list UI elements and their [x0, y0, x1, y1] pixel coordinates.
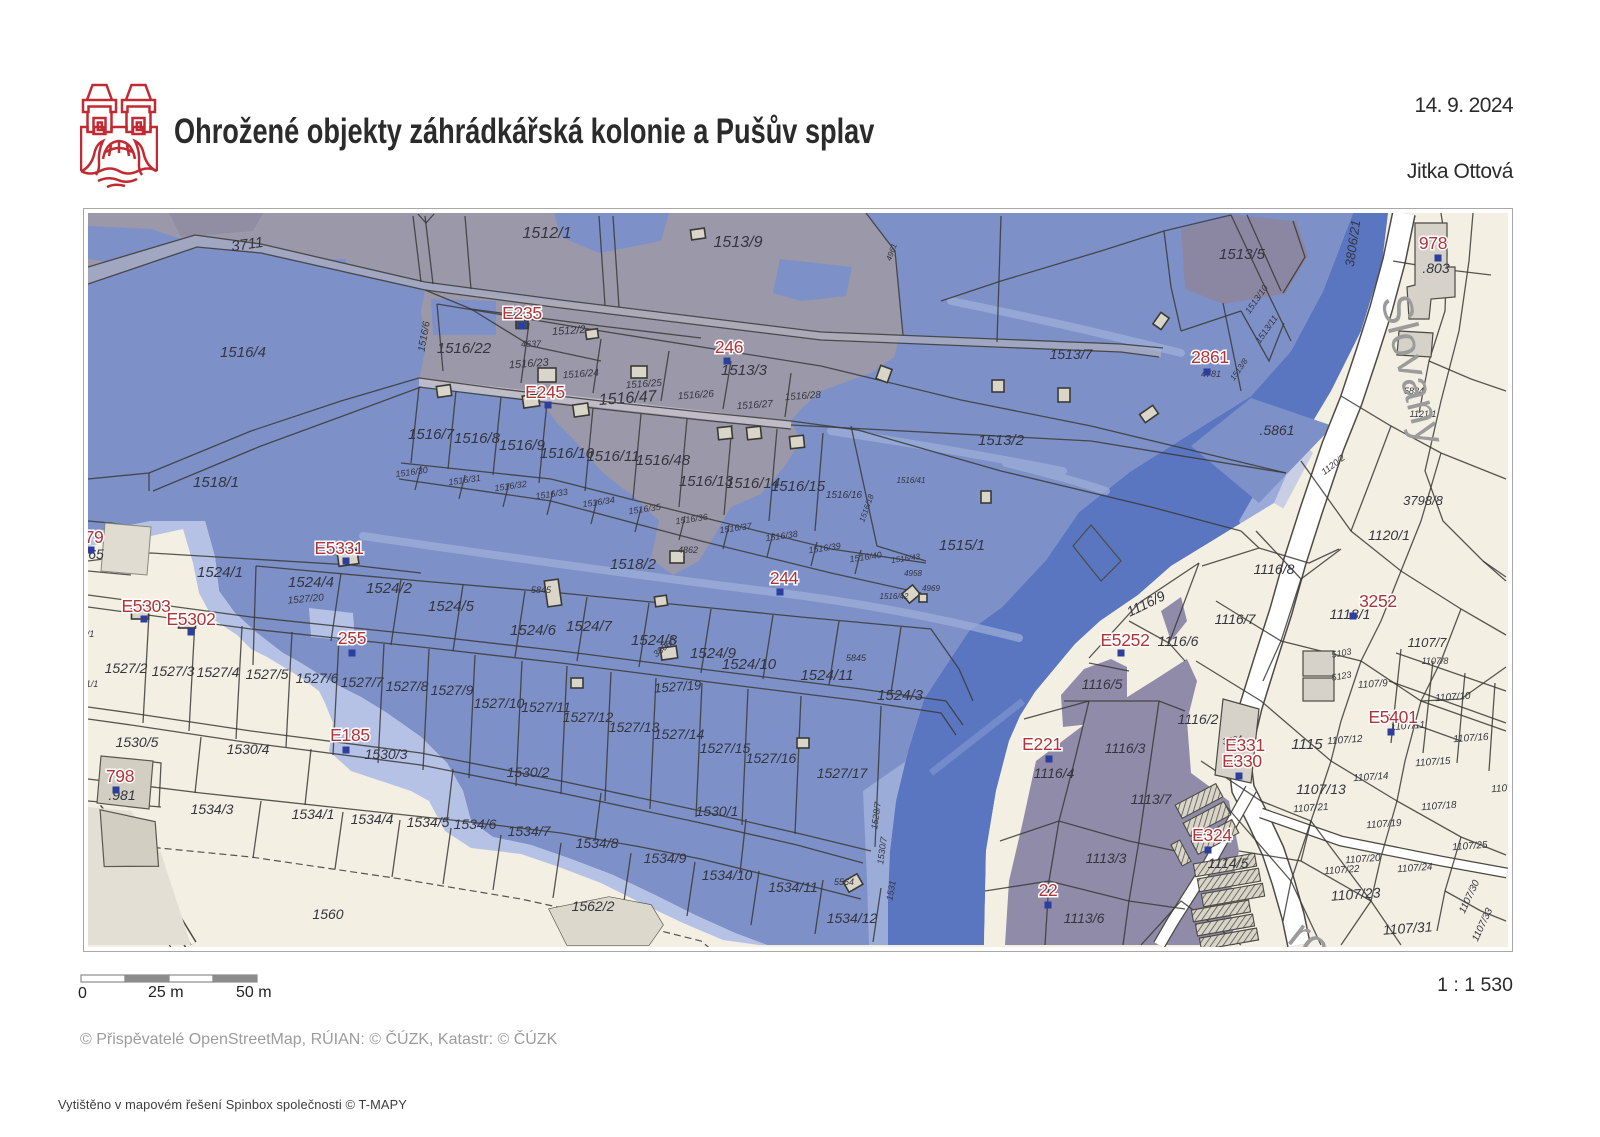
- svg-text:1116/4: 1116/4: [1034, 765, 1075, 781]
- svg-text:1116/8: 1116/8: [1254, 561, 1295, 577]
- svg-text:1107/17: 1107/17: [1491, 782, 1508, 795]
- svg-text:1527/17: 1527/17: [817, 765, 869, 781]
- svg-text:79: 79: [88, 527, 103, 547]
- svg-text:1527/14: 1527/14: [654, 726, 705, 742]
- svg-text:1516/22: 1516/22: [437, 340, 492, 357]
- svg-text:1113/6: 1113/6: [1064, 910, 1105, 926]
- svg-text:1527/8: 1527/8: [386, 678, 429, 694]
- svg-text:1107/13: 1107/13: [1296, 781, 1346, 797]
- svg-text:1516/8: 1516/8: [454, 430, 501, 447]
- svg-text:1116/7: 1116/7: [1215, 611, 1257, 627]
- svg-text:1530/3: 1530/3: [365, 746, 408, 762]
- svg-text:1527/9: 1527/9: [431, 682, 474, 698]
- svg-text:1534/5: 1534/5: [407, 814, 450, 830]
- svg-text:1534/11: 1534/11: [768, 879, 818, 895]
- svg-text:1527/5: 1527/5: [246, 666, 289, 682]
- svg-text:E5252: E5252: [1100, 630, 1149, 650]
- svg-text:1120/1: 1120/1: [1368, 527, 1410, 543]
- svg-text:255: 255: [338, 628, 366, 648]
- svg-text:1530/5: 1530/5: [116, 734, 159, 750]
- svg-text:1534/1: 1534/1: [292, 806, 335, 822]
- svg-text:1107/8: 1107/8: [1422, 656, 1449, 666]
- svg-text:1513/7: 1513/7: [1050, 346, 1094, 362]
- svg-text:5564: 5564: [834, 877, 854, 887]
- svg-text:1115: 1115: [1291, 736, 1323, 753]
- svg-text:1530/1: 1530/1: [696, 803, 739, 819]
- svg-text:E221: E221: [1022, 734, 1062, 754]
- svg-text:E5303: E5303: [121, 596, 170, 616]
- svg-text:1524/5: 1524/5: [428, 598, 475, 615]
- svg-text:978: 978: [1419, 233, 1447, 253]
- svg-text:.981: .981: [108, 787, 135, 803]
- svg-text:244: 244: [770, 568, 799, 588]
- svg-text:4969: 4969: [922, 584, 940, 593]
- svg-text:1516/4: 1516/4: [220, 344, 266, 361]
- svg-text:E235: E235: [502, 303, 542, 323]
- svg-text:4958: 4958: [904, 569, 922, 578]
- svg-text:1534/3: 1534/3: [191, 801, 234, 817]
- svg-text:1515/1: 1515/1: [939, 537, 985, 554]
- svg-text:4637: 4637: [521, 339, 542, 349]
- svg-text:E5302: E5302: [166, 609, 215, 629]
- svg-text:1107/9: 1107/9: [1358, 678, 1389, 691]
- svg-text:2861: 2861: [1191, 347, 1229, 367]
- svg-text:246: 246: [715, 337, 743, 357]
- svg-text:1527/3: 1527/3: [152, 663, 195, 679]
- svg-text:1527/16: 1527/16: [746, 750, 797, 766]
- svg-text:1534/10: 1534/10: [702, 867, 753, 883]
- svg-text:1516/42: 1516/42: [880, 592, 909, 601]
- svg-text:1116/2: 1116/2: [1178, 711, 1219, 727]
- svg-text:1527/15: 1527/15: [700, 740, 751, 756]
- svg-text:3252: 3252: [1359, 591, 1397, 611]
- svg-text:1114/5: 1114/5: [1208, 855, 1249, 871]
- svg-text:1516/41: 1516/41: [897, 476, 926, 485]
- svg-text:1113/7: 1113/7: [1131, 791, 1173, 807]
- svg-text:E330: E330: [1222, 751, 1262, 771]
- svg-text:798: 798: [106, 766, 134, 786]
- svg-text:1562/2: 1562/2: [572, 898, 615, 914]
- svg-text:1524/6: 1524/6: [510, 622, 557, 639]
- svg-text:1534/6: 1534/6: [454, 816, 497, 832]
- svg-text:1560: 1560: [312, 906, 343, 922]
- svg-text:E324: E324: [1192, 825, 1232, 845]
- svg-text:E185: E185: [330, 725, 370, 745]
- svg-text:1534/8: 1534/8: [576, 835, 619, 851]
- svg-text:1524/7: 1524/7: [566, 618, 613, 635]
- svg-text:1527/4: 1527/4: [197, 664, 240, 680]
- svg-text:1534/9: 1534/9: [644, 850, 687, 866]
- svg-text:1534/12: 1534/12: [827, 910, 878, 926]
- svg-text:.5861: .5861: [1259, 422, 1294, 438]
- svg-text:1527/2: 1527/2: [105, 660, 148, 676]
- svg-text:1524/1: 1524/1: [197, 564, 243, 581]
- svg-text:1107/7: 1107/7: [1408, 635, 1448, 650]
- svg-text:1530/2: 1530/2: [507, 764, 550, 780]
- svg-text:1/1: 1/1: [88, 679, 98, 689]
- svg-text:1527/7: 1527/7: [341, 674, 385, 690]
- svg-text:1518/2: 1518/2: [610, 556, 657, 573]
- svg-text:1527/12: 1527/12: [563, 709, 614, 725]
- svg-text:E5401: E5401: [1368, 707, 1417, 727]
- svg-text:1116/6: 1116/6: [1158, 633, 1199, 649]
- svg-text:1534/7: 1534/7: [508, 823, 552, 839]
- svg-text:1524/2: 1524/2: [366, 580, 413, 597]
- svg-text:1116/5: 1116/5: [1082, 676, 1123, 692]
- svg-text:E5331: E5331: [314, 538, 363, 558]
- svg-text:1534/4: 1534/4: [351, 811, 394, 827]
- svg-text:1516/15: 1516/15: [771, 478, 826, 495]
- svg-text:1527/10: 1527/10: [474, 695, 525, 711]
- svg-text:1512/1: 1512/1: [523, 225, 572, 242]
- svg-text:1530/4: 1530/4: [227, 741, 270, 757]
- svg-text:1518/1: 1518/1: [193, 474, 239, 491]
- svg-text:1527/6: 1527/6: [296, 670, 339, 686]
- svg-text:3798/8: 3798/8: [1403, 493, 1444, 508]
- svg-text:1516/48: 1516/48: [636, 452, 691, 469]
- svg-text:1513/9: 1513/9: [714, 234, 763, 251]
- svg-text:1516/16: 1516/16: [826, 490, 863, 501]
- svg-text:E245: E245: [525, 382, 565, 402]
- svg-text:1113/3: 1113/3: [1086, 850, 1127, 866]
- svg-text:1513/2: 1513/2: [978, 432, 1025, 449]
- svg-text:.803: .803: [1422, 260, 1449, 276]
- svg-text:4862: 4862: [678, 545, 698, 555]
- svg-text:1527/13: 1527/13: [609, 719, 660, 735]
- svg-text:5845: 5845: [531, 585, 552, 595]
- svg-text:1513/5: 1513/5: [1219, 246, 1266, 263]
- svg-text:7/1: 7/1: [88, 629, 94, 639]
- svg-text:1524/3: 1524/3: [877, 687, 924, 704]
- svg-text:1516/11: 1516/11: [586, 448, 639, 465]
- svg-text:1524/4: 1524/4: [288, 574, 334, 591]
- svg-text:1516/9: 1516/9: [499, 437, 546, 454]
- svg-text:1524/10: 1524/10: [722, 656, 777, 673]
- svg-text:1512/2: 1512/2: [552, 324, 586, 338]
- svg-text:1524/11: 1524/11: [800, 667, 853, 684]
- svg-text:1516/7: 1516/7: [408, 426, 455, 443]
- svg-text:22: 22: [1039, 880, 1058, 900]
- svg-text:1513/3: 1513/3: [721, 362, 768, 379]
- svg-text:1116/3: 1116/3: [1105, 740, 1146, 756]
- svg-text:5845: 5845: [846, 653, 867, 663]
